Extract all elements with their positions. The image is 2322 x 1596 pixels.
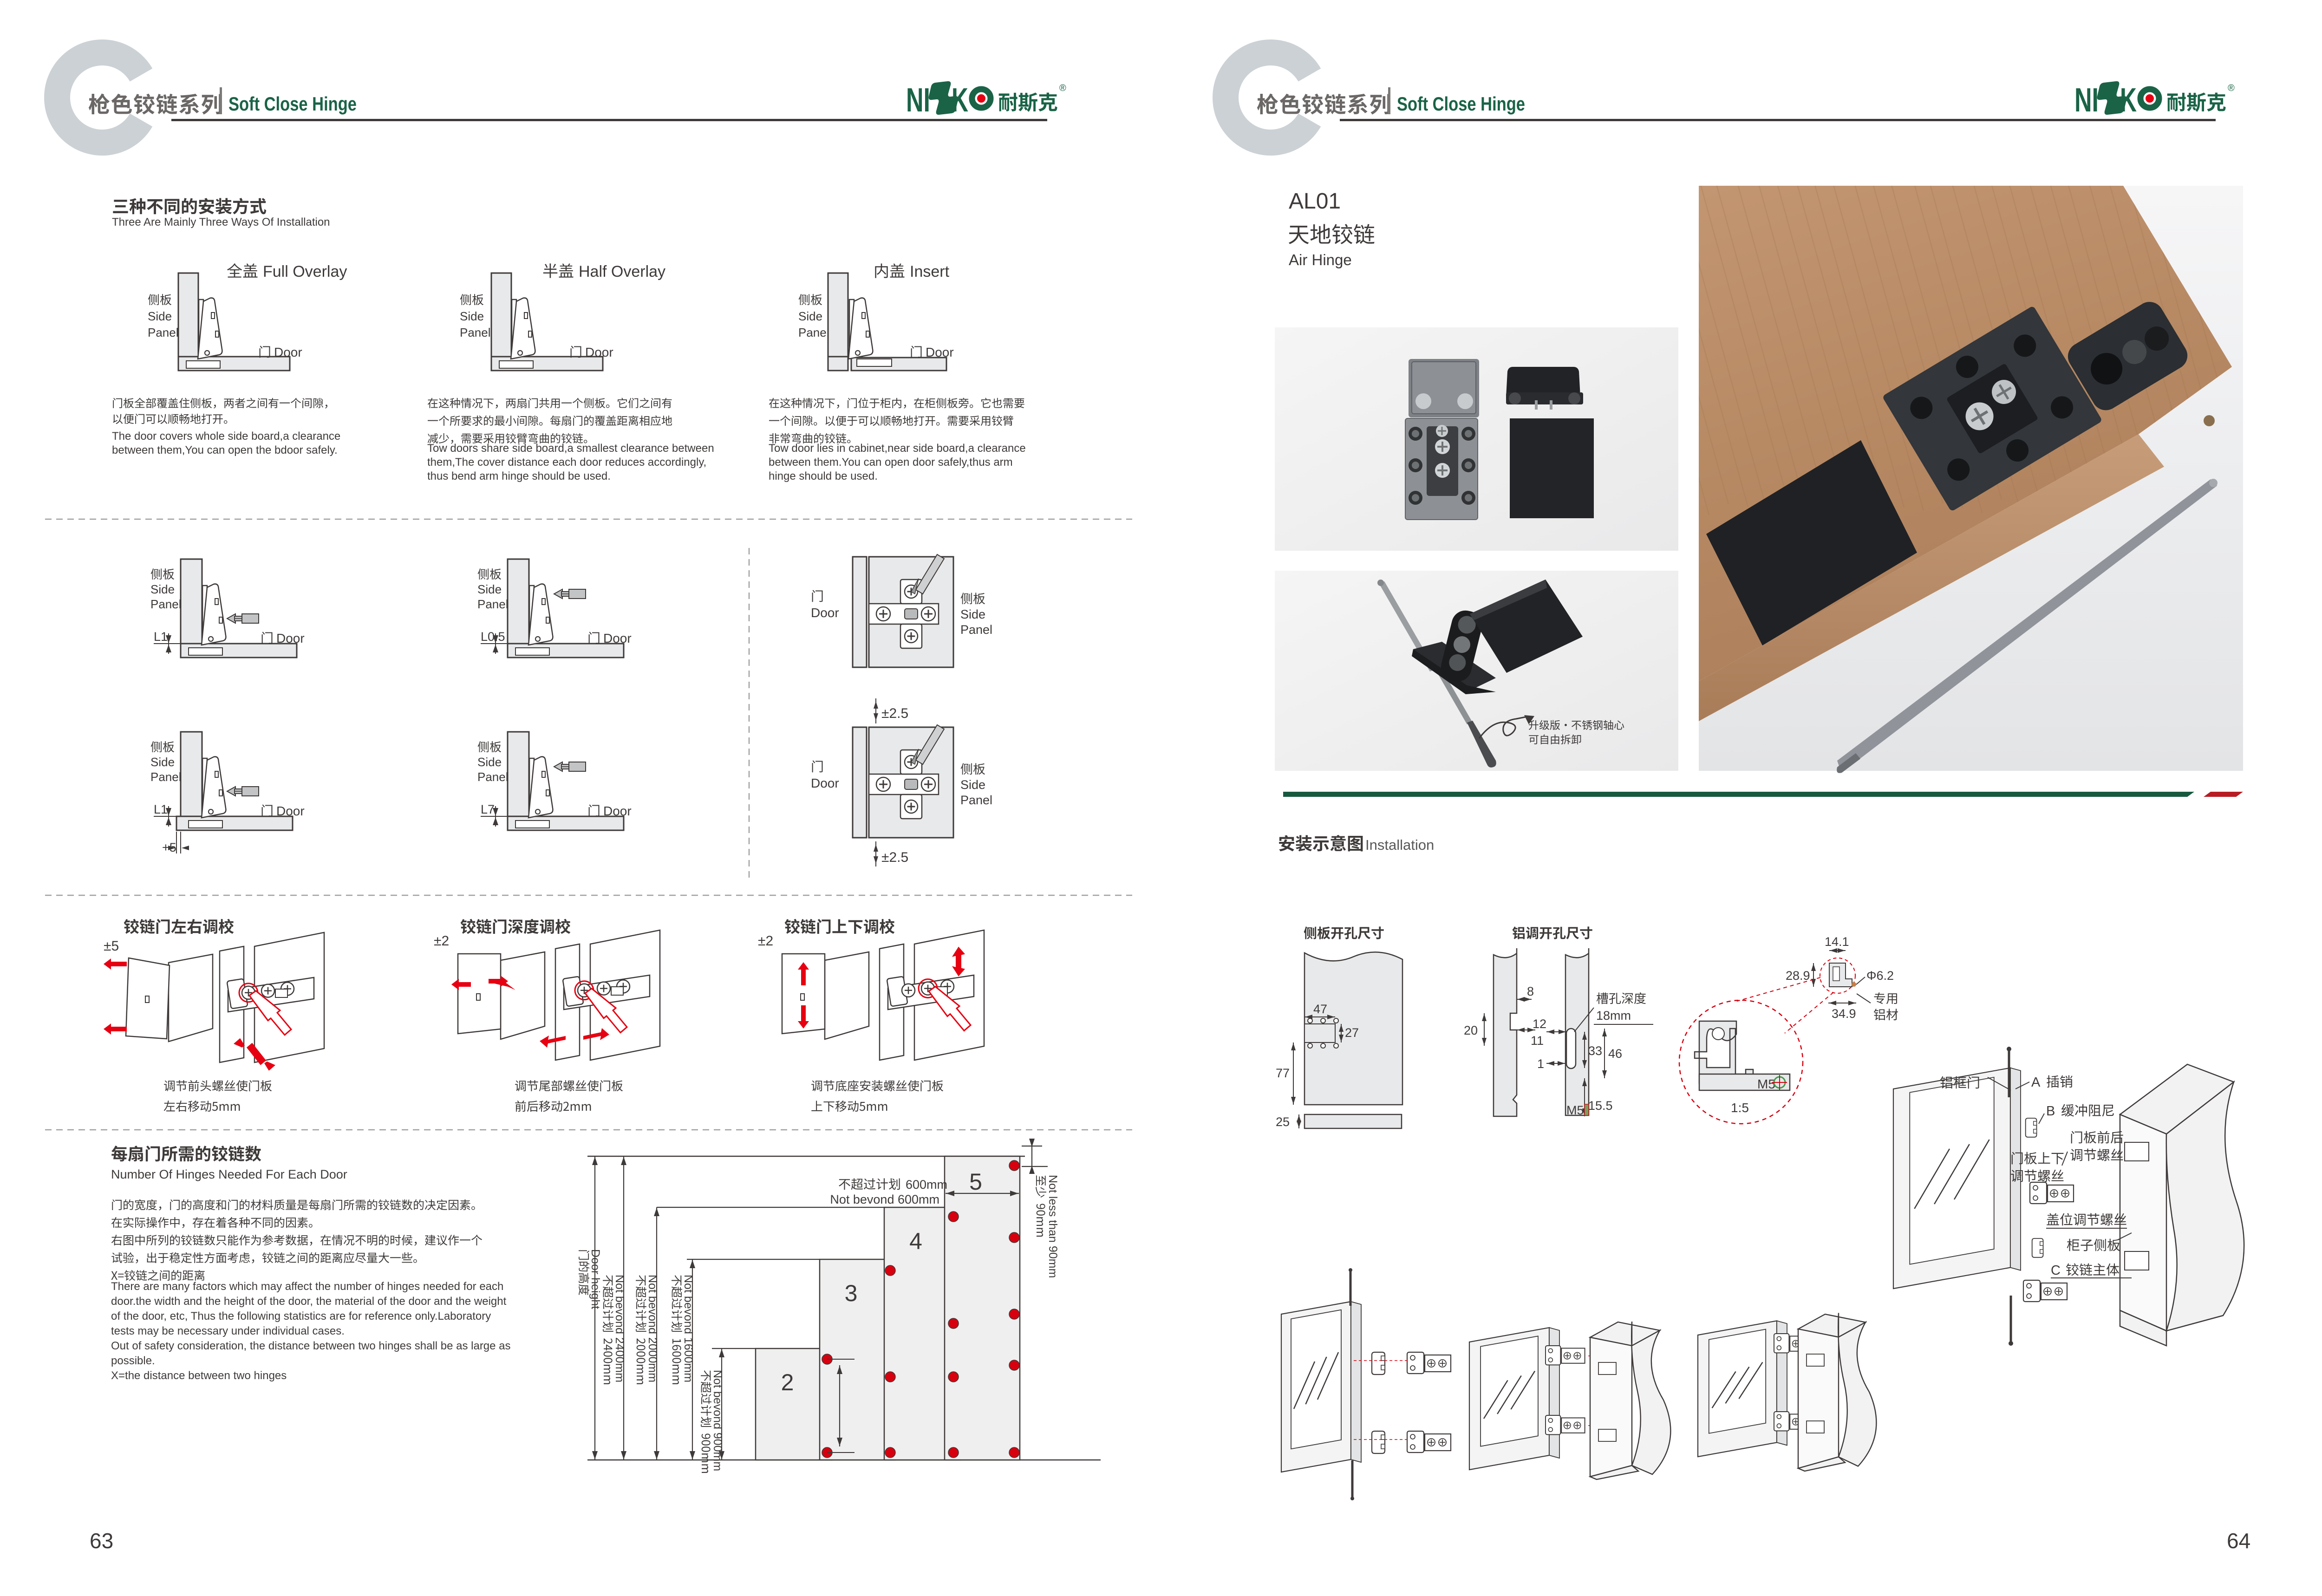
svg-text:Not bevond 2400mm: Not bevond 2400mm — [613, 1275, 626, 1382]
svg-text:Φ6.2: Φ6.2 — [1866, 969, 1894, 983]
svg-text:Side: Side — [150, 755, 175, 769]
svg-text:Door: Door — [603, 804, 632, 818]
svg-text:±5: ±5 — [104, 938, 119, 954]
svg-text:27: 27 — [1345, 1026, 1359, 1040]
svg-text:tests may be necessary under i: tests may be necessary under individual … — [111, 1325, 345, 1337]
svg-text:NI: NI — [906, 82, 930, 119]
svg-text:Not bevond 2000mm: Not bevond 2000mm — [646, 1275, 659, 1382]
svg-text:64: 64 — [2227, 1529, 2250, 1553]
svg-text:Panel: Panel — [477, 597, 509, 611]
svg-text:L1: L1 — [154, 802, 168, 816]
svg-text:Air Hinge: Air Hinge — [1289, 251, 1352, 268]
svg-text:15.5: 15.5 — [1588, 1099, 1613, 1113]
svg-text:M5: M5 — [1566, 1103, 1584, 1117]
svg-text:12: 12 — [1533, 1017, 1546, 1031]
svg-text:Side: Side — [960, 607, 985, 621]
svg-text:Three Are Mainly Three Ways Of: Three Are Mainly Three Ways Of Installat… — [112, 216, 330, 228]
svg-text:±2.5: ±2.5 — [881, 850, 908, 865]
svg-text:Not bevond 900mm: Not bevond 900mm — [711, 1370, 724, 1471]
svg-text:Door: Door — [276, 631, 305, 645]
svg-text:Panel: Panel — [477, 770, 509, 784]
svg-text:Door: Door — [585, 345, 613, 359]
svg-text:Out of safety consideration, t: Out of safety consideration, the distanc… — [111, 1340, 511, 1352]
svg-text:Door: Door — [926, 345, 954, 359]
svg-text:14.1: 14.1 — [1825, 935, 1849, 949]
svg-text:Number Of Hinges Needed For Ea: Number Of Hinges Needed For Each Door — [111, 1167, 347, 1181]
svg-text:NI: NI — [2074, 82, 2099, 119]
svg-text:Panel: Panel — [148, 326, 179, 339]
svg-text:Not less than 90mm: Not less than 90mm — [1046, 1175, 1059, 1278]
svg-text:2: 2 — [781, 1369, 794, 1395]
svg-text:600mm: 600mm — [906, 1178, 947, 1192]
svg-text:4: 4 — [909, 1228, 922, 1254]
svg-text:A: A — [2031, 1075, 2041, 1090]
svg-text:Door: Door — [811, 776, 839, 790]
svg-text:46: 46 — [1608, 1047, 1622, 1061]
svg-text:77: 77 — [1276, 1066, 1290, 1080]
svg-text:B: B — [2046, 1104, 2055, 1119]
svg-text:Door: Door — [274, 345, 302, 359]
svg-text:®: ® — [2228, 83, 2235, 93]
svg-text:47: 47 — [1313, 1002, 1327, 1016]
svg-text:Tow doors share side board,a s: Tow doors share side board,a smallest cl… — [427, 442, 714, 455]
svg-text:K: K — [2120, 82, 2137, 119]
svg-text:Door: Door — [276, 804, 305, 818]
svg-text:Side: Side — [150, 582, 175, 596]
svg-text:thus bend arm hinge should be: thus bend arm hinge should be used. — [427, 470, 611, 482]
svg-text:±2.5: ±2.5 — [881, 706, 908, 721]
svg-text:Side: Side — [477, 582, 502, 596]
svg-text:Panel: Panel — [960, 793, 992, 807]
svg-text:1: 1 — [1537, 1057, 1544, 1071]
svg-text:8: 8 — [1527, 984, 1534, 998]
svg-text:Not bevond 600mm: Not bevond 600mm — [830, 1192, 939, 1206]
svg-text:34.9: 34.9 — [1832, 1007, 1856, 1021]
svg-text:Door: Door — [811, 606, 839, 620]
svg-text:Side: Side — [460, 309, 484, 323]
svg-text:±2: ±2 — [434, 933, 449, 949]
svg-text:±2: ±2 — [758, 933, 773, 949]
svg-text:63: 63 — [90, 1529, 113, 1553]
svg-text:Side: Side — [960, 778, 985, 792]
svg-text:them,The cover distance each d: them,The cover distance each door reduce… — [427, 456, 706, 469]
svg-text:5: 5 — [969, 1169, 982, 1195]
svg-text:Panel: Panel — [798, 326, 829, 339]
svg-text:Installation: Installation — [1365, 837, 1434, 853]
svg-text:hinge should be used.: hinge should be used. — [769, 470, 878, 482]
svg-text:Panel: Panel — [460, 326, 491, 339]
svg-text:Panel: Panel — [960, 623, 992, 637]
svg-text:Insert: Insert — [910, 263, 950, 280]
svg-text:Half Overlay: Half Overlay — [579, 263, 665, 280]
svg-text:L7: L7 — [481, 802, 495, 816]
svg-text:Not bevond 1600mm: Not bevond 1600mm — [682, 1275, 695, 1382]
svg-text:Door: Door — [603, 631, 632, 645]
svg-text:®: ® — [1059, 83, 1066, 93]
svg-text:Full Overlay: Full Overlay — [263, 263, 347, 280]
svg-text:18mm: 18mm — [1596, 1009, 1631, 1023]
svg-text:between them,You can open the: between them,You can open the bdoor safe… — [112, 444, 338, 456]
svg-text:There are many factors which m: There are many factors which may affect … — [111, 1280, 503, 1293]
svg-text:K: K — [952, 82, 968, 119]
svg-text:The door covers whole side boa: The door covers whole side board,a clear… — [112, 430, 340, 443]
svg-text:between them.You can open door: between them.You can open door safely,th… — [769, 456, 1013, 469]
svg-text:20: 20 — [1464, 1023, 1478, 1037]
svg-text:11: 11 — [1531, 1034, 1544, 1048]
svg-text:25: 25 — [1276, 1115, 1290, 1129]
svg-text:L1: L1 — [154, 630, 168, 644]
svg-text:of the door, etc, Thus the fol: of the door, etc, Thus the following sta… — [111, 1310, 491, 1322]
svg-text:L0.5: L0.5 — [481, 630, 505, 644]
svg-text:Soft Close Hinge: Soft Close Hinge — [1397, 93, 1525, 115]
svg-text:Side: Side — [148, 309, 172, 323]
svg-text:Panel: Panel — [150, 597, 182, 611]
svg-text:door.the width and the height: door.the width and the height of the doo… — [111, 1295, 507, 1308]
svg-text:Side: Side — [477, 755, 502, 769]
svg-text:Soft Close Hinge: Soft Close Hinge — [228, 93, 357, 115]
svg-text:X=the distance between two hin: X=the distance between two hinges — [111, 1369, 287, 1382]
svg-text:C: C — [2051, 1263, 2061, 1278]
svg-text:Panel: Panel — [150, 770, 182, 784]
svg-text:AL01: AL01 — [1289, 189, 1341, 214]
svg-text:possible.: possible. — [111, 1355, 155, 1367]
svg-text:Tow door lies in cabinet,near: Tow door lies in cabinet,near side board… — [769, 442, 1026, 455]
svg-text:Door height: Door height — [589, 1249, 602, 1309]
svg-text:3: 3 — [845, 1280, 858, 1306]
svg-text:Side: Side — [798, 309, 822, 323]
svg-text:28.9: 28.9 — [1786, 969, 1810, 983]
svg-text:M5: M5 — [1757, 1077, 1775, 1091]
svg-text:1:5: 1:5 — [1731, 1101, 1749, 1115]
svg-text:33: 33 — [1588, 1044, 1602, 1058]
